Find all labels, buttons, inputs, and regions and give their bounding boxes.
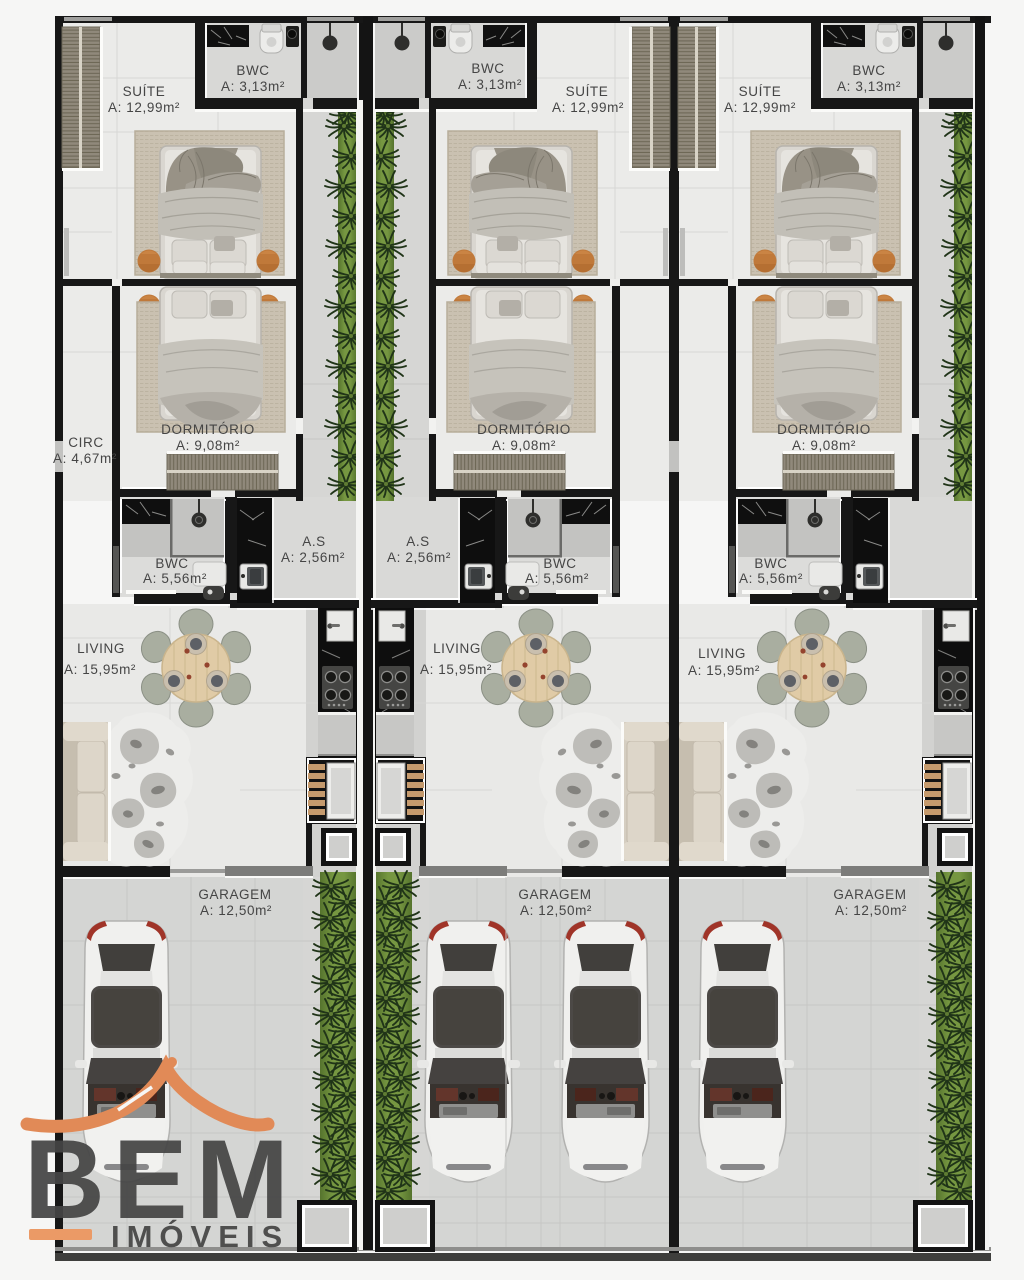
svg-text:A: 12,99m²: A: 12,99m² — [108, 100, 180, 115]
svg-text:A: 3,13m²: A: 3,13m² — [837, 79, 901, 94]
svg-text:A: 5,56m²: A: 5,56m² — [143, 571, 207, 586]
svg-text:SUÍTE: SUÍTE — [566, 84, 609, 99]
svg-text:GARAGEM: GARAGEM — [198, 887, 271, 902]
svg-text:GARAGEM: GARAGEM — [833, 887, 906, 902]
svg-text:LIVING: LIVING — [698, 646, 746, 661]
svg-text:IMÓVEIS: IMÓVEIS — [111, 1218, 289, 1254]
svg-text:BWC: BWC — [471, 61, 504, 76]
svg-text:BWC: BWC — [852, 63, 885, 78]
svg-text:BWC: BWC — [236, 63, 269, 78]
svg-text:A: 9,08m²: A: 9,08m² — [792, 438, 856, 453]
svg-text:CIRC: CIRC — [68, 435, 103, 450]
svg-text:DORMITÓRIO: DORMITÓRIO — [777, 422, 871, 437]
svg-text:SUÍTE: SUÍTE — [123, 84, 166, 99]
svg-text:BWC: BWC — [543, 556, 576, 571]
svg-text:BWC: BWC — [754, 556, 787, 571]
svg-text:A: 3,13m²: A: 3,13m² — [221, 79, 285, 94]
svg-text:LIVING: LIVING — [433, 641, 481, 656]
svg-text:A: 5,56m²: A: 5,56m² — [739, 571, 803, 586]
svg-text:A: 12,50m²: A: 12,50m² — [835, 903, 907, 918]
svg-text:LIVING: LIVING — [77, 641, 125, 656]
svg-text:A: 12,99m²: A: 12,99m² — [724, 100, 796, 115]
svg-text:SUÍTE: SUÍTE — [739, 84, 782, 99]
svg-text:A: 2,56m²: A: 2,56m² — [281, 550, 345, 565]
svg-text:A: 15,95m²: A: 15,95m² — [420, 662, 492, 677]
svg-text:A: 12,99m²: A: 12,99m² — [552, 100, 624, 115]
svg-text:A: 12,50m²: A: 12,50m² — [200, 903, 272, 918]
svg-text:A: 12,50m²: A: 12,50m² — [520, 903, 592, 918]
svg-text:A: 15,95m²: A: 15,95m² — [688, 663, 760, 678]
svg-text:A.S: A.S — [406, 534, 430, 549]
svg-text:GARAGEM: GARAGEM — [518, 887, 591, 902]
svg-text:DORMITÓRIO: DORMITÓRIO — [477, 422, 571, 437]
svg-text:A.S: A.S — [302, 534, 326, 549]
svg-text:BWC: BWC — [155, 556, 188, 571]
svg-text:A: 9,08m²: A: 9,08m² — [176, 438, 240, 453]
svg-text:A: 15,95m²: A: 15,95m² — [64, 662, 136, 677]
svg-text:A: 5,56m²: A: 5,56m² — [525, 571, 589, 586]
svg-text:A: 9,08m²: A: 9,08m² — [492, 438, 556, 453]
svg-text:A: 2,56m²: A: 2,56m² — [387, 550, 451, 565]
svg-text:A: 3,13m²: A: 3,13m² — [458, 77, 522, 92]
svg-text:DORMITÓRIO: DORMITÓRIO — [161, 422, 255, 437]
svg-text:A: 4,67m²: A: 4,67m² — [53, 451, 117, 466]
